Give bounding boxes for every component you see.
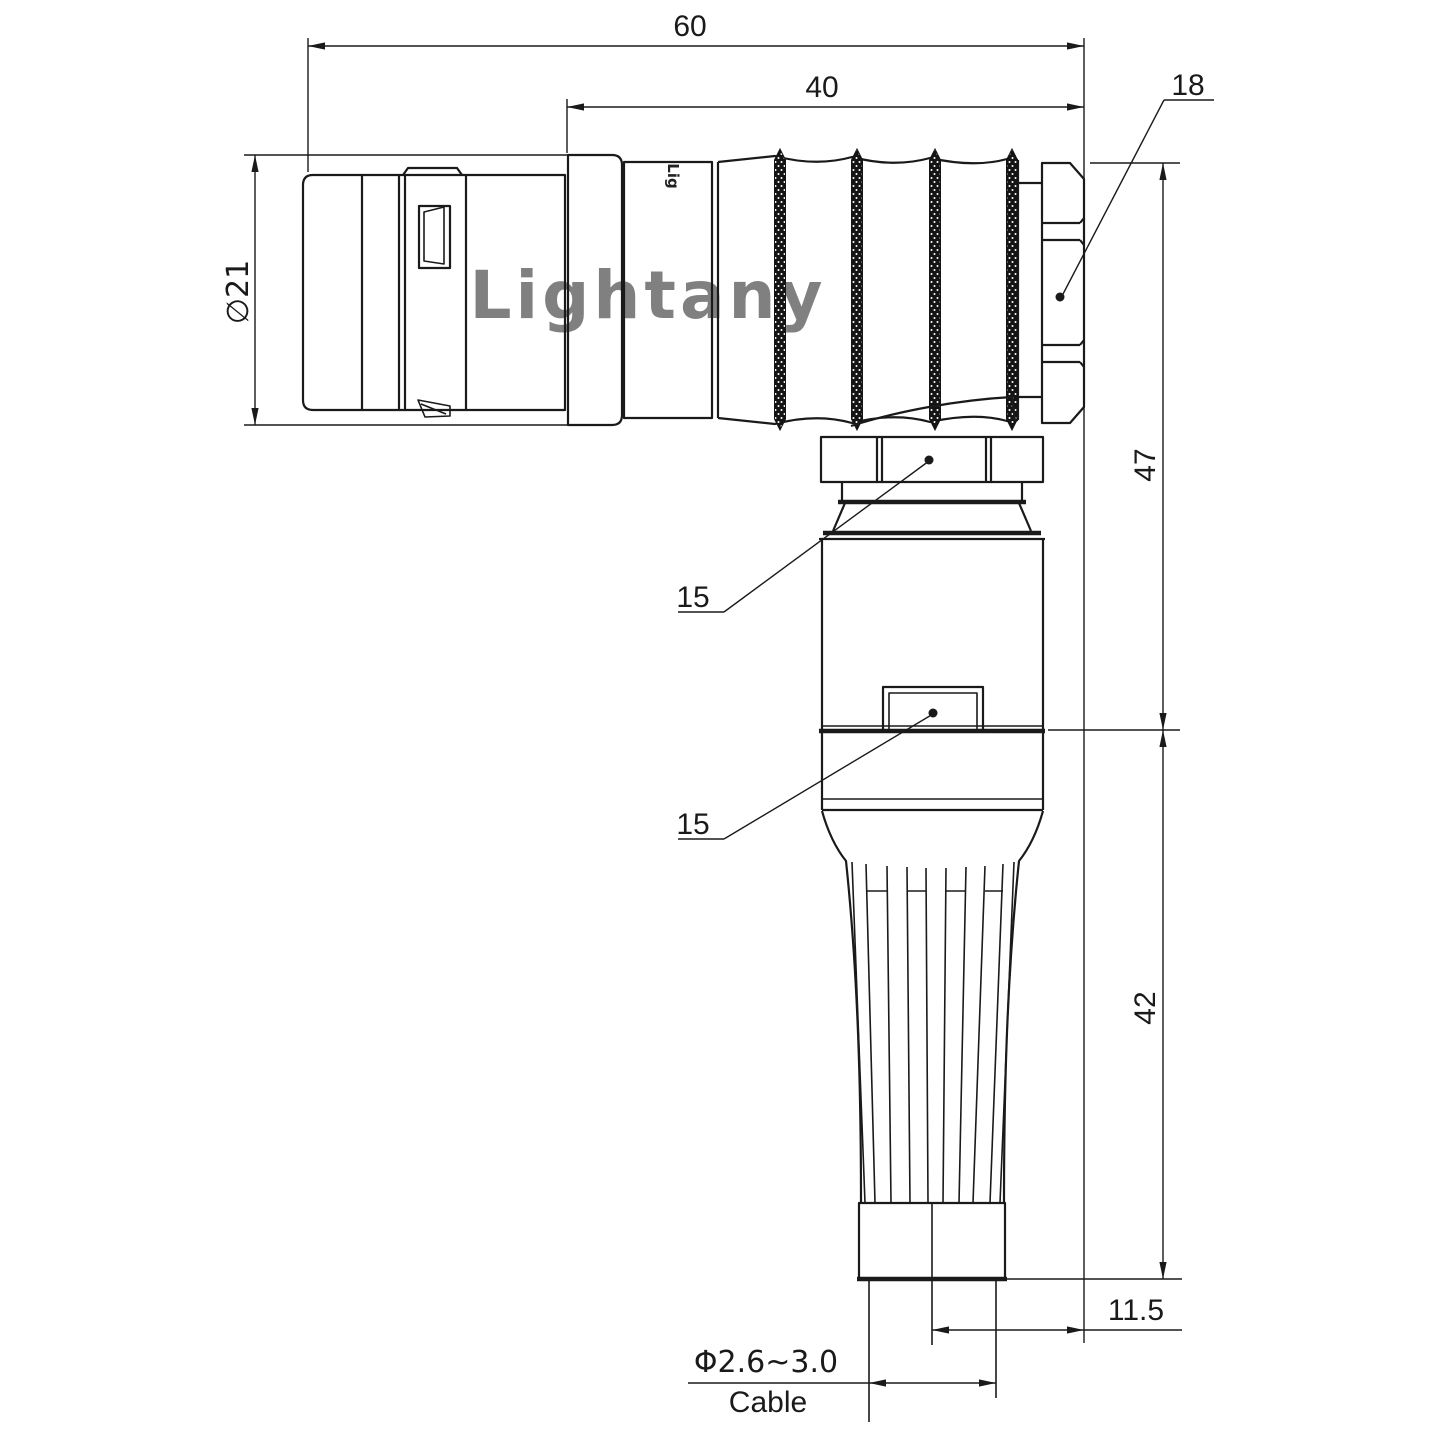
dim-18-label: 18 [1171,69,1204,102]
technical-drawing-canvas: Lightany Lig [0,0,1440,1440]
connector-engineering-drawing: Lightany Lig [0,0,1440,1440]
cable-diameter-label: Φ2.6~3.0 [694,1345,838,1380]
watermark-text: Lightany [469,257,826,334]
dim-height-47: 47 [1090,163,1180,730]
dim-40-label: 40 [805,71,838,104]
dim-rear-length-40: 40 [567,71,1084,153]
dim-axis-offset-11-5: 11.5 [932,1294,1182,1334]
rear-neck [1018,183,1042,397]
latch-window [419,206,450,268]
cable [869,1281,996,1422]
dim-overall-length-60: 60 [308,10,1084,1343]
knurl-band-4 [1007,149,1018,430]
dim-cable-diameter: Φ2.6~3.0 Cable [688,1345,996,1419]
callout-15-upper-label: 15 [676,581,709,614]
neck-rings [823,482,1041,533]
barrel-logo-text: Lig [664,163,682,188]
dim-11-5-label: 11.5 [1108,1294,1164,1327]
knurl-band-3 [930,149,941,430]
callout-nut-size-18: 18 [1056,69,1215,302]
latch-notch [418,400,450,417]
cable-label: Cable [729,1386,807,1419]
callout-boss-15: 15 [676,709,937,842]
vertical-body [819,539,1045,810]
dim-height-42: 42 [1005,730,1182,1279]
knurl-band-2 [852,149,863,430]
callout-15-lower-label: 15 [676,808,709,841]
knurl-band-1 [775,149,786,430]
dim-42-label: 42 [1129,991,1162,1024]
cable-ferrule [857,1203,1007,1279]
dim-47-label: 47 [1129,448,1162,481]
dim-dia21-label: ∅21 [221,260,256,324]
strain-relief-boot [822,811,1043,1203]
dim-60-label: 60 [673,10,706,43]
